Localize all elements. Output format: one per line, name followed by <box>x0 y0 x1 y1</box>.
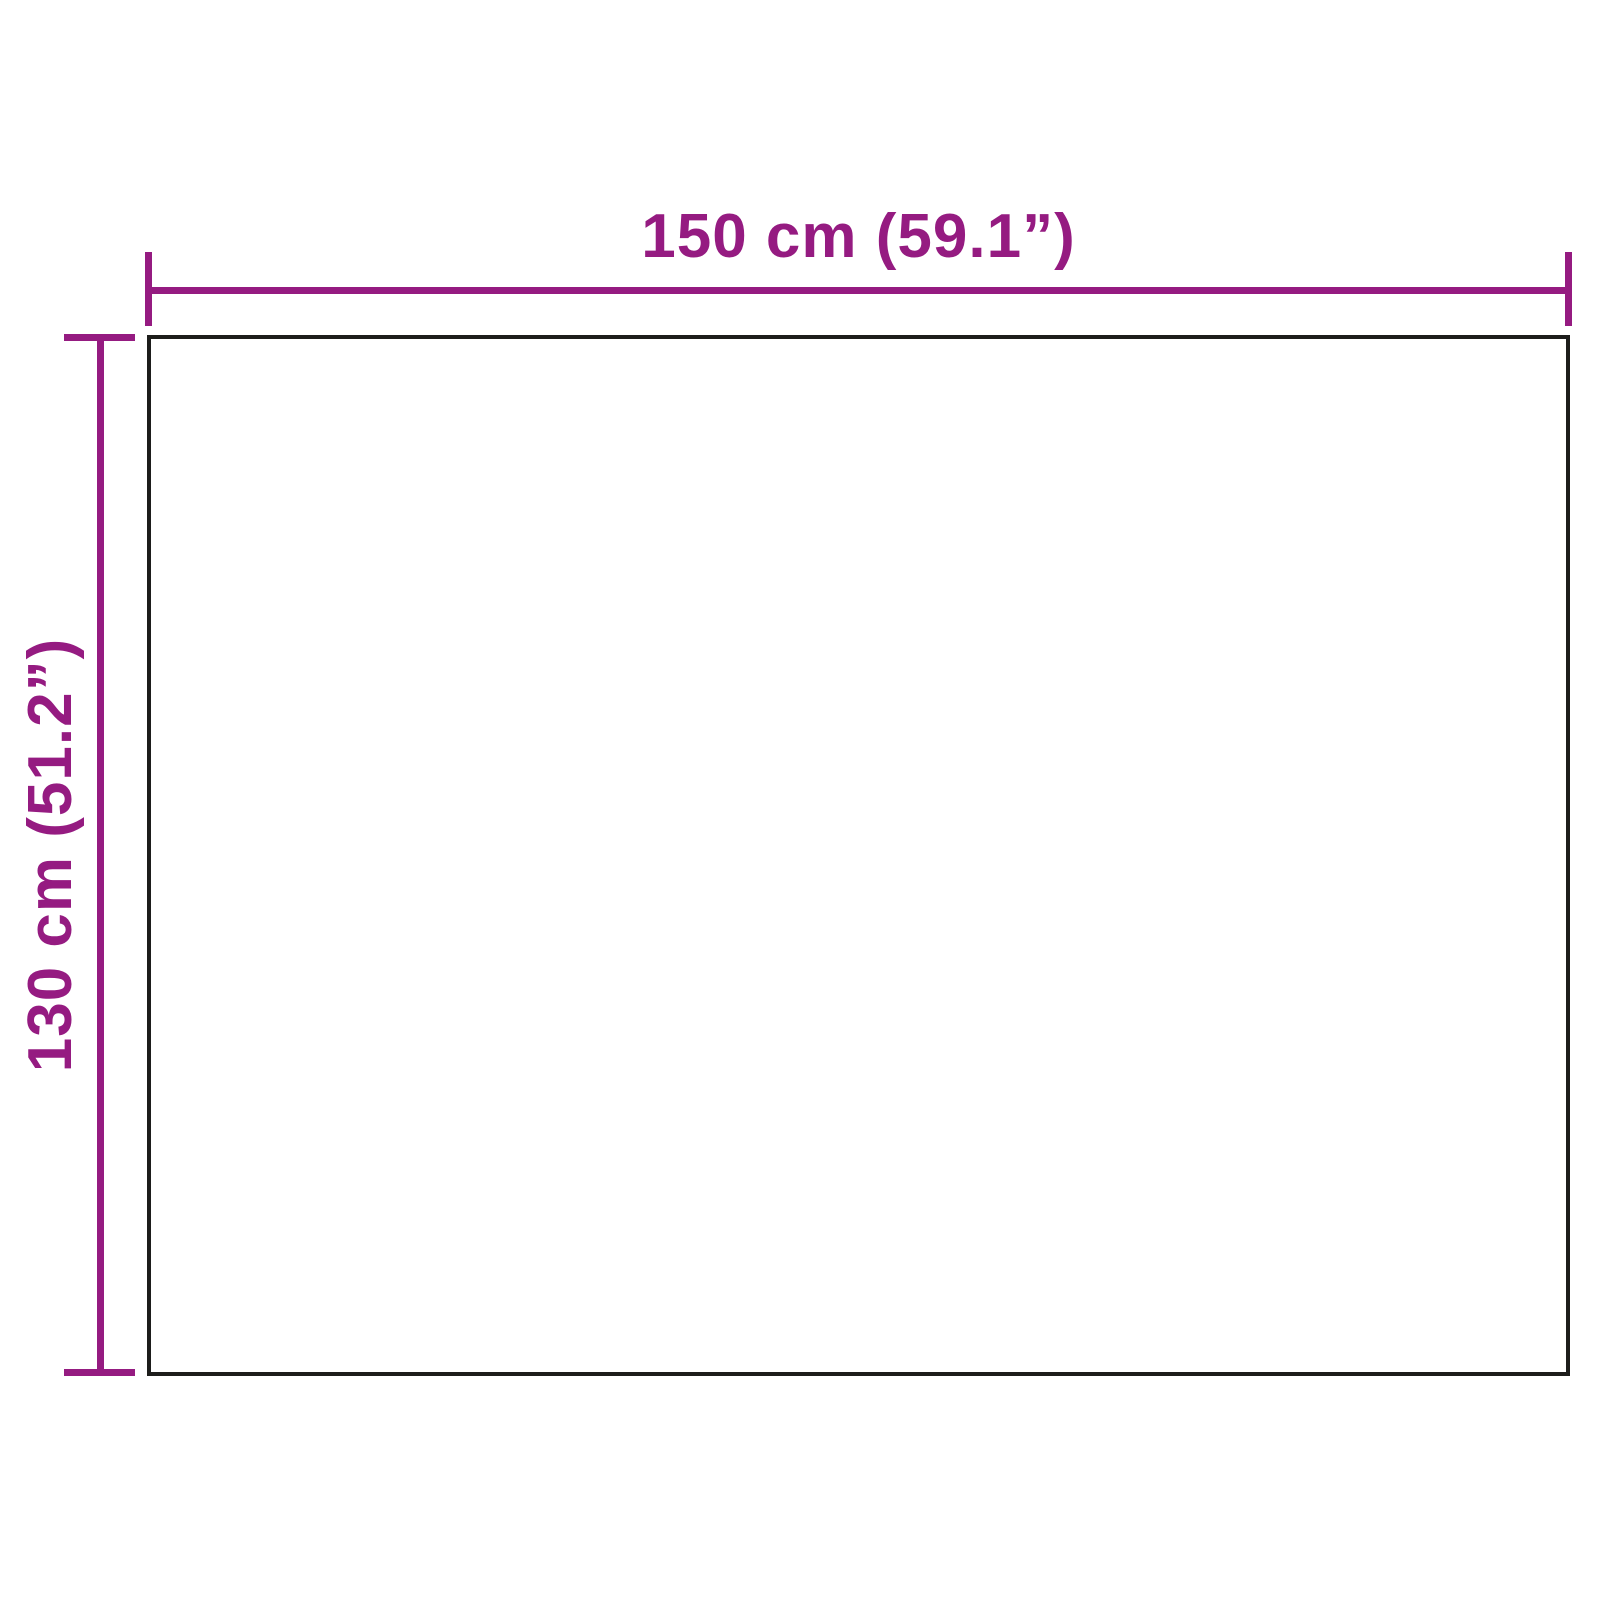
width-dimension-label: 150 cm (59.1”) <box>147 206 1570 268</box>
dimension-diagram: 150 cm (59.1”) 130 cm (51.2”) <box>0 0 1600 1600</box>
height-dimension-tick-top <box>64 334 135 341</box>
height-dimension-label: 130 cm (51.2”) <box>20 638 82 1072</box>
width-dimension-line <box>147 287 1570 294</box>
height-dimension-tick-bottom <box>64 1369 135 1376</box>
height-dimension-line <box>97 337 104 1375</box>
product-outline-rectangle <box>147 335 1570 1376</box>
